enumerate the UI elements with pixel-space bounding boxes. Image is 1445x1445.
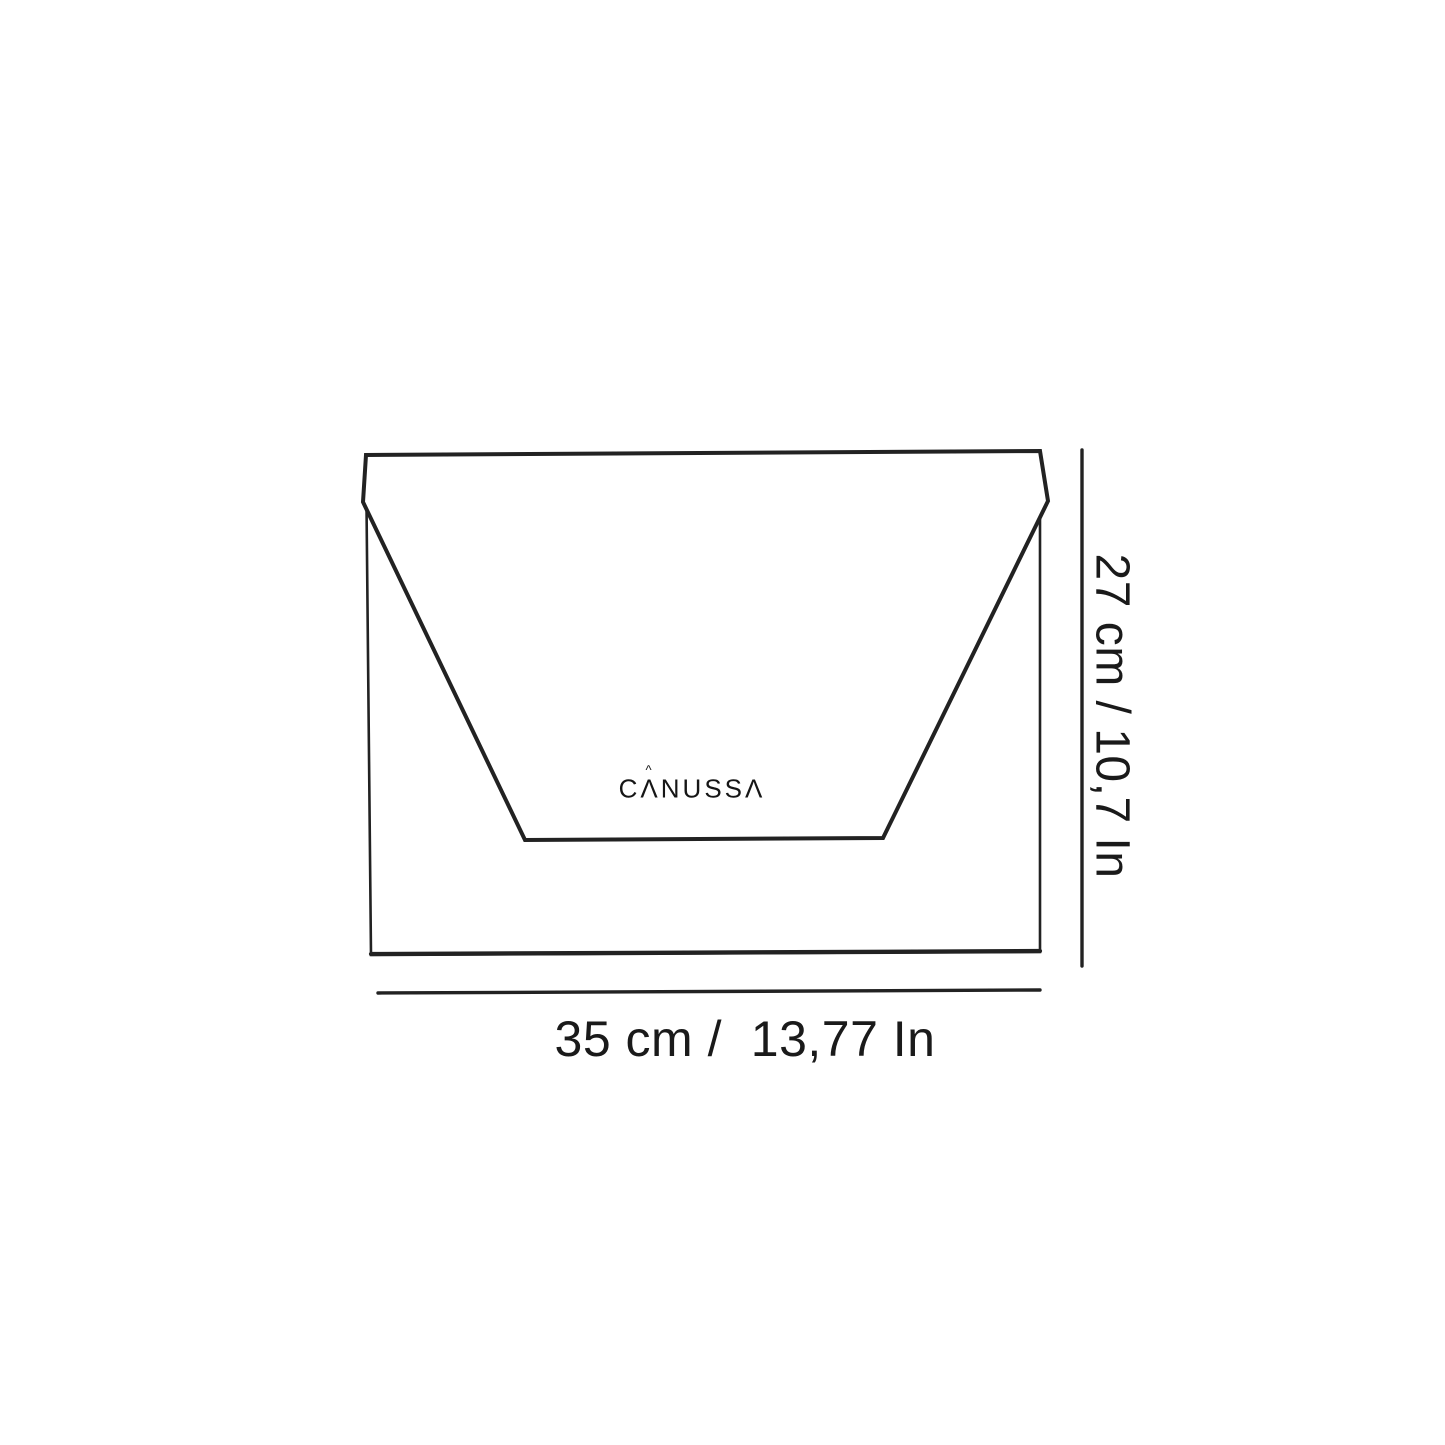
brand-logo-letter-a2: Λ bbox=[745, 774, 765, 804]
brand-logo-letter-a: ^Λ bbox=[640, 774, 660, 805]
height-dimension-label: 27 cm / 10,7 In bbox=[1085, 553, 1140, 878]
bag-body-bottom-edge bbox=[371, 951, 1040, 954]
line-group bbox=[363, 450, 1082, 993]
brand-logo-accent: ^ bbox=[645, 763, 651, 778]
brand-logo-letters-nuss: NUSS bbox=[661, 774, 745, 804]
brand-logo: C^ΛNUSSΛ bbox=[619, 774, 766, 805]
product-dimension-diagram: C^ΛNUSSΛ 27 cm / 10,7 In 35 cm / 13,77 I… bbox=[0, 0, 1445, 1445]
brand-logo-lambda: Λ bbox=[640, 774, 660, 804]
width-dimension-label: 35 cm / 13,77 In bbox=[555, 1010, 936, 1068]
width-dimension-line bbox=[378, 990, 1040, 993]
brand-logo-letter-c: C bbox=[619, 774, 641, 804]
bag-line-drawing bbox=[0, 0, 1445, 1445]
